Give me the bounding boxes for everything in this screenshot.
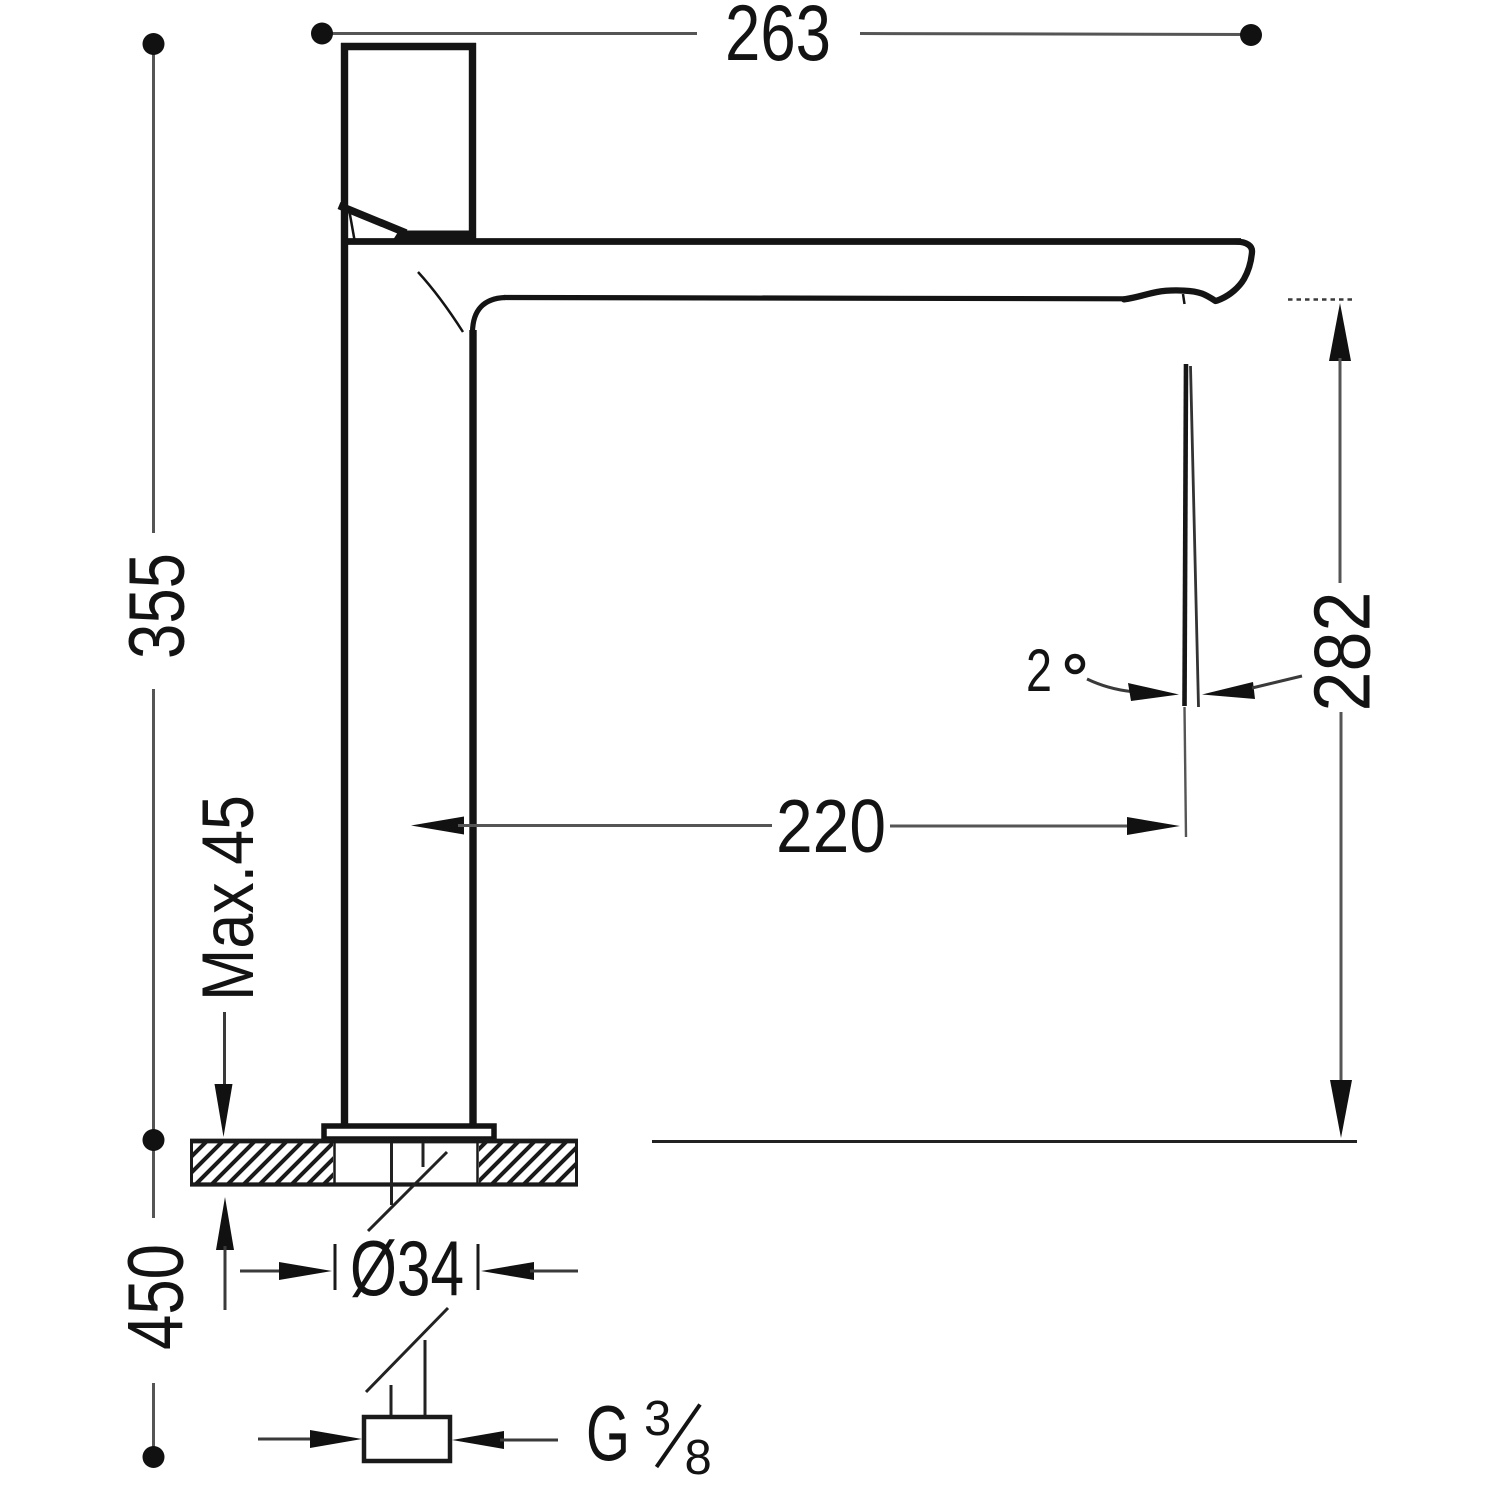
svg-text:G: G [586, 1389, 630, 1477]
svg-text:450: 450 [111, 1244, 200, 1350]
svg-text:Ø34: Ø34 [350, 1224, 464, 1312]
svg-text:355: 355 [112, 553, 201, 659]
svg-text:8: 8 [685, 1431, 712, 1485]
svg-text:2: 2 [1026, 637, 1052, 704]
svg-text:282: 282 [1298, 592, 1387, 712]
svg-text:3: 3 [644, 1392, 671, 1446]
svg-text:263: 263 [725, 0, 831, 77]
svg-text:Max.45: Max.45 [188, 795, 269, 1001]
svg-text:220: 220 [776, 784, 886, 868]
